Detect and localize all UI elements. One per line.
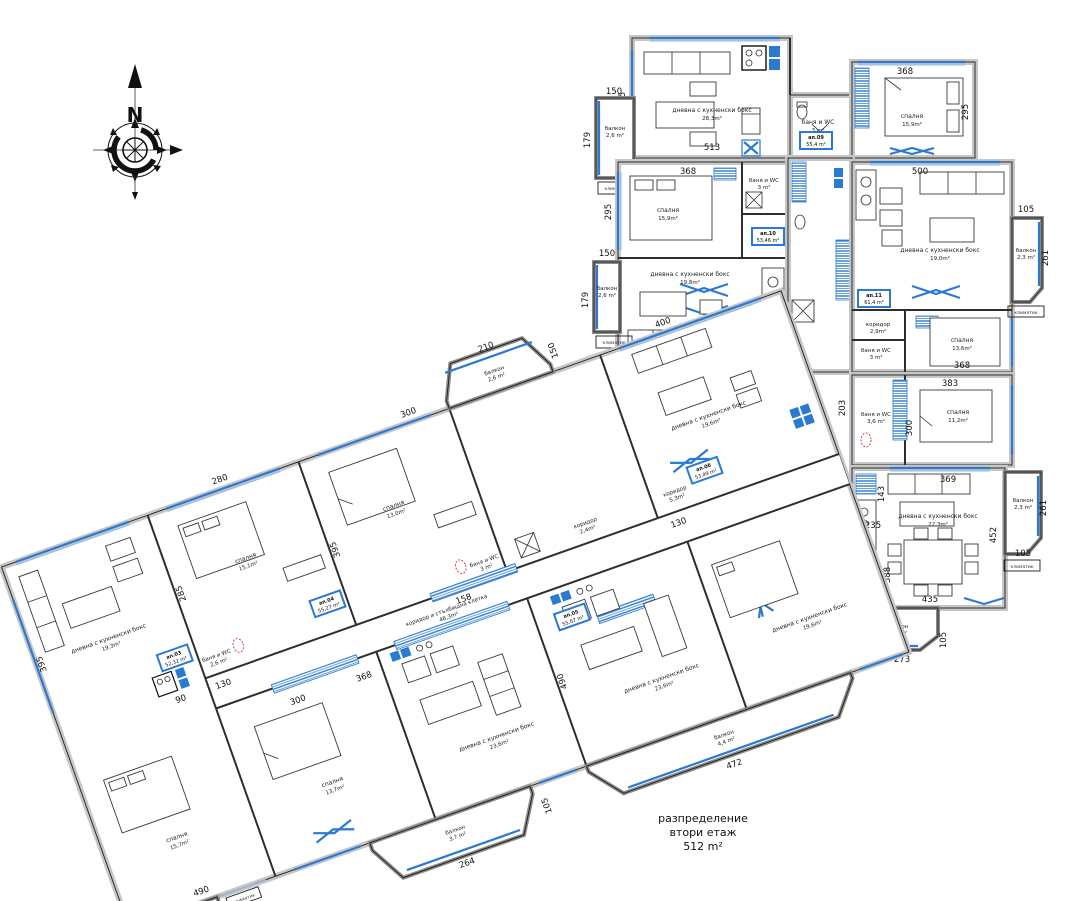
room-label: спалня [657,207,680,214]
room-label: баня и WC [861,412,891,418]
balcony-right-lower: балкон 2,3 m² 261 105 климатик [1004,472,1049,571]
climatik-label: климатик [1015,311,1038,316]
room-area: 3 m² [870,354,883,361]
svg-text:ап.11: ап.11 [866,293,882,299]
svg-text:472: 472 [725,757,744,772]
dim-label: 105 [1015,549,1031,559]
room-area: 15,9m² [902,121,922,128]
compass-rose-icon: N [93,64,183,200]
dim-label: 143 [877,486,887,502]
room-area: 2,9m² [870,328,886,335]
svg-text:55,4 m²: 55,4 m² [806,142,826,148]
svg-text:53,46 m²: 53,46 m² [757,238,780,244]
title-block: разпределение втори етаж 512 m² [658,812,748,853]
room-area: 3 m² [758,184,771,191]
dim-label: 300 [905,420,915,436]
apartment-wing-south: коридор и стълбищна клетка 46,3m² [0,244,929,901]
dim-label: 368 [680,167,696,177]
room-label: баня и WC [861,348,891,354]
room-area: 2,3 m² [1014,504,1032,511]
apartment-badge: ап.09 55,4 m² [800,132,832,149]
room-area: 15,9m² [658,215,678,222]
apartment-badge: ап.11 61,4 m² [858,290,890,307]
room-label: баня и WC [749,178,779,184]
room-area: 22,3m² [928,521,948,528]
dim-label: 452 [989,527,999,543]
plan-title-line1: разпределение [658,812,748,825]
climatik-label: климатик [1011,565,1034,570]
dim-label: 513 [704,143,720,153]
svg-text:150: 150 [546,341,561,360]
room-area: 2,6 m² [606,132,624,139]
room-label: балкон [597,286,618,292]
dim-label: 150 [606,87,622,97]
svg-text:ап.09: ап.09 [808,135,824,141]
room-label: спалня [901,113,924,120]
dim-label: 500 [912,167,928,177]
room-label: дневна с кухненски бокс [650,271,729,278]
room-area: 19,8m² [680,279,700,286]
dim-label: 368 [954,361,970,371]
room-area: 2,6 m² [598,292,616,299]
apartment-unit-bed-ne: спалня 15,9m² 368 295 [852,62,975,158]
room-label: баня и WC [802,119,835,126]
floor-plan-canvas: N [0,0,1079,901]
room-area: 3,6 m² [867,418,885,425]
apartment-unit-11: дневна с кухненски бокс 19,0m² коридор 2… [852,162,1012,372]
room-area: 11,2m² [948,417,968,424]
dim-label: 369 [940,475,956,485]
wardrobe-hatch [855,68,869,128]
room-area: 13,6m² [952,345,972,352]
room-label: балкон [1013,498,1034,504]
room-area: 28,3m² [702,115,722,122]
dim-label: 179 [583,132,593,148]
room-label: балкон [1016,248,1037,254]
plan-title-area: 512 m² [683,840,723,853]
dim-label: 295 [961,104,971,120]
svg-text:61,4 m²: 61,4 m² [864,300,884,306]
room-label: дневна с кухненски бокс [898,513,977,520]
room-label: дневна с кухненски бокс [672,107,751,114]
dim-label: 150 [599,249,615,259]
dim-label: 261 [1039,500,1049,516]
dim-label: 105 [939,632,949,648]
dim-label: 435 [922,595,938,605]
room-label: коридор [866,322,891,328]
apartment-badge: ап.10 53,46 m² [752,228,784,245]
dim-label: 179 [581,292,591,308]
dim-label: 383 [942,379,958,389]
room-label: спалня [947,409,970,416]
plan-title-line2: втори етаж [669,826,736,839]
room-area: 19,0m² [930,255,950,262]
room-area: 2,3 m² [1017,254,1035,261]
svg-text:ап.10: ап.10 [760,231,776,237]
room-label: балкон [605,126,626,132]
svg-text:105: 105 [540,796,555,815]
dim-label: 105 [1018,205,1034,215]
balcony-right-upper: балкон 2,3 m² 105 261 климатик [1008,205,1051,317]
room-label: спалня [951,337,974,344]
dim-label: 261 [1041,250,1051,266]
dim-label: 295 [604,204,614,220]
dim-label: 368 [897,67,913,77]
room-label: дневна с кухненски бокс [900,247,979,254]
dim-label: 203 [838,400,848,416]
